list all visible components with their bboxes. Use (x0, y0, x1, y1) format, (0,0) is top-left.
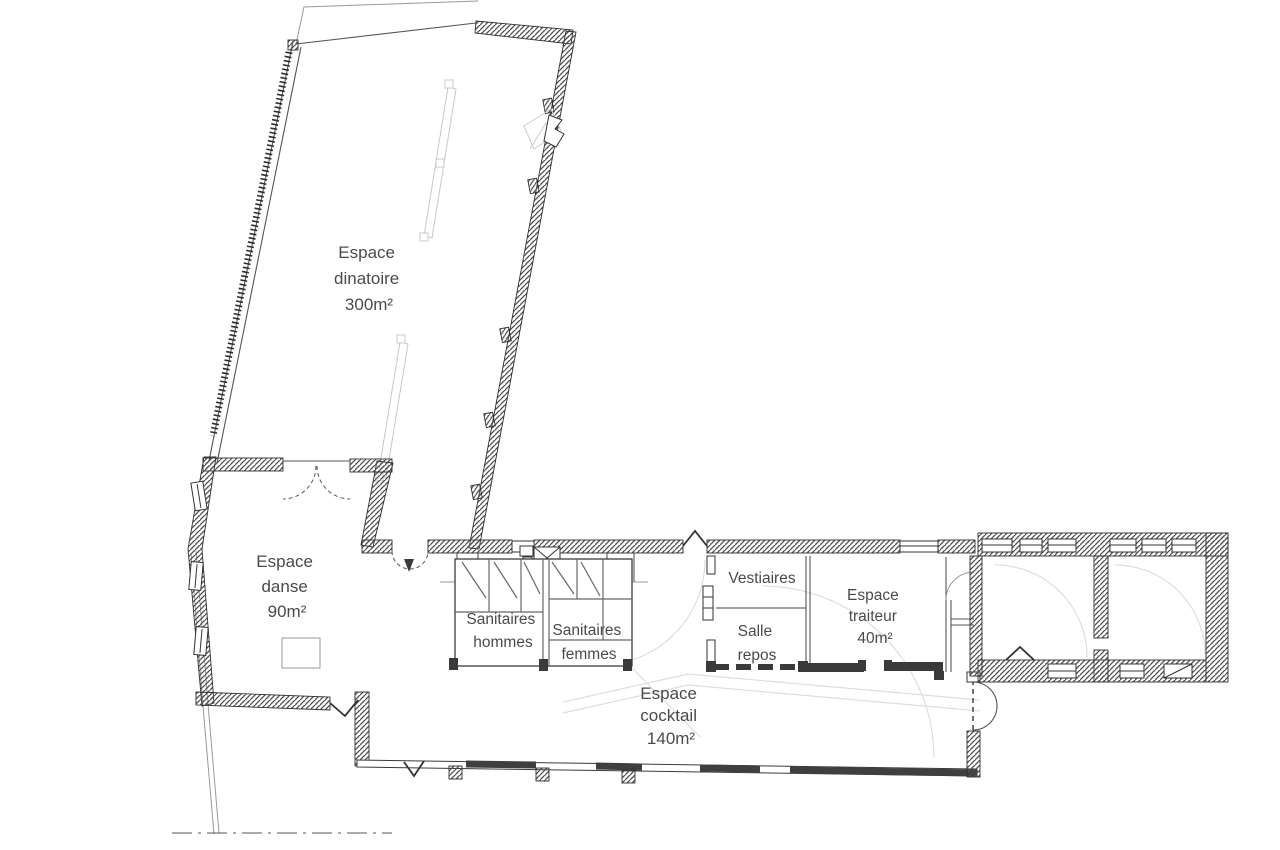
room-label-salle-repos: Salle repos (738, 623, 777, 664)
room-label-traiteur: Espace traiteur 40m² (847, 587, 903, 647)
south-wall-segment (700, 768, 760, 769)
north-wall-line (296, 23, 476, 44)
south-wall-segment (596, 766, 642, 767)
swing-arc-faint (1115, 565, 1205, 655)
pillar (623, 659, 632, 671)
label-line: 140m² (647, 729, 696, 748)
label-line: Espace (338, 243, 395, 262)
label-line: traiteur (849, 608, 897, 625)
corridor-north-wall (362, 531, 975, 582)
south-wall-segment (790, 770, 977, 773)
boundary-line (296, 1, 478, 44)
label-line: repos (738, 647, 777, 664)
wall-pier (500, 327, 512, 342)
window (194, 627, 208, 656)
wall-pier (484, 412, 496, 427)
window-band-mullions (213, 52, 289, 436)
label-line: Espace (640, 684, 697, 703)
door-swing-arc (973, 682, 997, 706)
wall-segment (428, 540, 512, 553)
pillar (539, 659, 548, 671)
east-wall (1206, 533, 1228, 682)
wall-segment (475, 21, 573, 44)
radiator (703, 586, 713, 620)
label-line: 300m² (345, 295, 394, 314)
wall-segment (355, 692, 369, 766)
swing-arc-faint (995, 565, 1087, 657)
skylight-cap (420, 233, 428, 241)
label-line: cocktail (640, 706, 697, 725)
label-line: dinatoire (334, 269, 399, 288)
label-line: danse (261, 577, 307, 596)
skylight-joint (436, 159, 444, 167)
wall-stub (707, 556, 715, 574)
skylight-strip (378, 342, 408, 478)
label-line: 90m² (268, 602, 307, 621)
wall-segment (362, 540, 392, 553)
wall-segment (938, 540, 975, 553)
room-labels: Espace dinatoire 300m² Espace danse 90m²… (256, 243, 903, 748)
south-wall-segment (466, 764, 536, 765)
room-label-dinatoire: Espace dinatoire 300m² (334, 243, 404, 314)
door-swing-arc (973, 706, 997, 730)
wall-segment (196, 692, 330, 710)
label-line: hommes (473, 634, 533, 651)
wall-segment (350, 459, 392, 472)
wall-segment (707, 540, 900, 553)
right-wing (970, 533, 1228, 682)
window (189, 562, 203, 591)
floor-element (282, 638, 320, 668)
door-leaf-marks (1006, 647, 1034, 660)
door-swing-arc (283, 466, 316, 499)
room-label-danse: Espace danse 90m² (256, 552, 317, 621)
label-line: Vestiaires (728, 570, 795, 587)
room-label-cocktail: Espace cocktail 140m² (640, 684, 701, 748)
south-wall-segment (890, 662, 943, 671)
door-arrow (404, 559, 414, 572)
window-band-edge (217, 47, 301, 463)
south-wall-segment (806, 663, 864, 672)
pillar (449, 658, 458, 670)
pillar (884, 660, 892, 671)
label-line: Espace (256, 552, 313, 571)
pillar (536, 768, 549, 781)
entrance-door-marks (683, 531, 707, 546)
floor-plan-page: Espace dinatoire 300m² Espace danse 90m²… (0, 0, 1280, 850)
partition-wall (1094, 556, 1108, 638)
floor-plan-canvas: Espace dinatoire 300m² Espace danse 90m²… (0, 0, 1280, 850)
label-line: 40m² (857, 630, 892, 647)
pillar (449, 766, 462, 779)
label-line: Sanitaires (466, 611, 535, 628)
door-swing-arc (317, 466, 350, 499)
wall-segment (967, 731, 980, 777)
label-line: Espace (847, 587, 899, 604)
label-line: Sanitaires (552, 622, 621, 639)
pillar (858, 660, 866, 671)
wall-step (934, 671, 944, 680)
label-line: femmes (561, 646, 616, 663)
skylight-cap (397, 335, 405, 343)
west-wall (970, 556, 982, 676)
pillar (706, 661, 716, 672)
corner-post (288, 40, 298, 50)
door-leaf-marks (330, 700, 358, 716)
pillar (622, 770, 635, 783)
wall-segment (361, 461, 393, 547)
label-line: Salle (738, 623, 772, 640)
room-label-vestiaires: Vestiaires (728, 570, 795, 587)
roof-line (563, 674, 980, 702)
skylight-cap (445, 80, 453, 88)
wall-segment (469, 31, 576, 549)
roof-line (563, 685, 980, 713)
partition-foot (1094, 650, 1108, 682)
